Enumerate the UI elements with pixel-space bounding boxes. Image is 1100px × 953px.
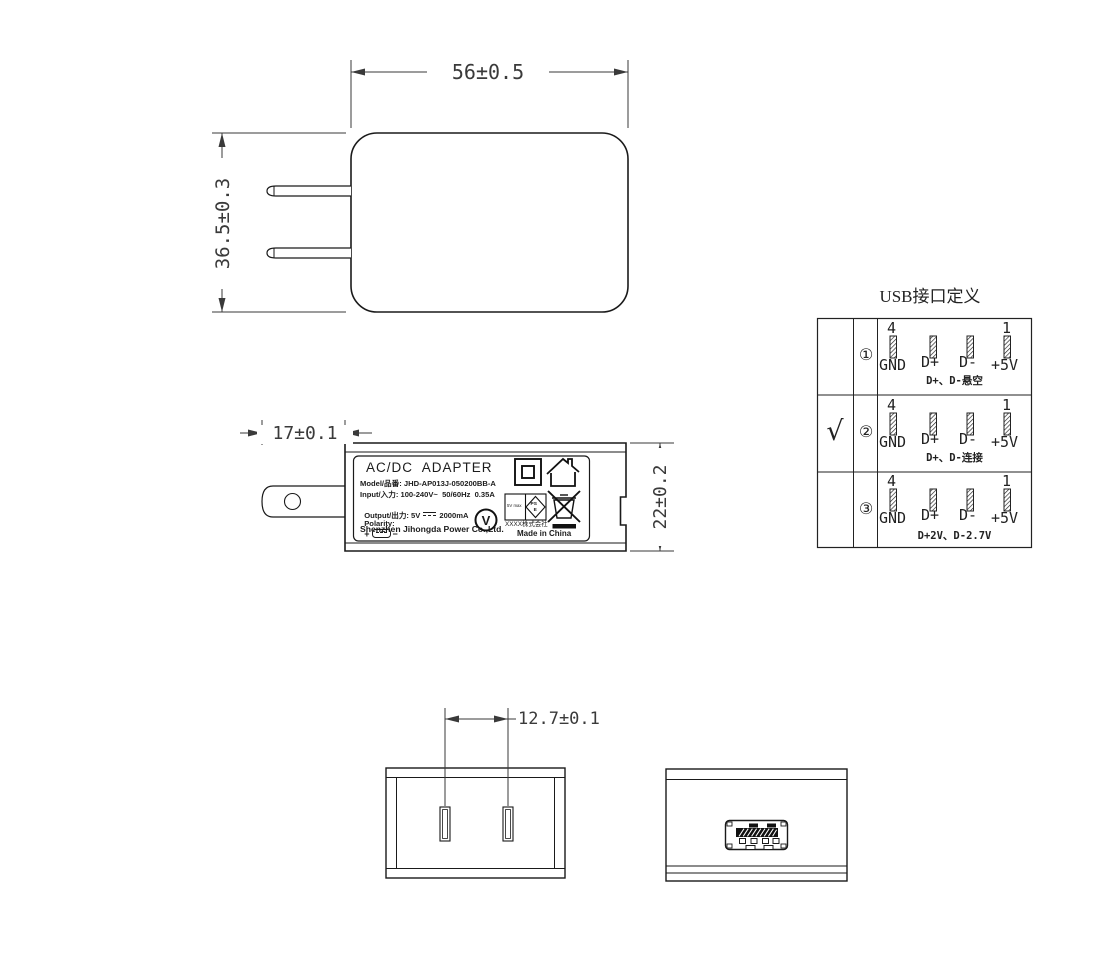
pse-letters-top: PS [531, 502, 537, 507]
label-made-in-china: Made in China [517, 530, 571, 538]
linework [0, 0, 1100, 953]
drawing-canvas: 56±0.5 36.5±0.3 17±0.1 22±0.2 12.7±0.1 A… [0, 0, 1100, 953]
row3-label-5v: +5V [991, 511, 1018, 527]
row3-label-dminus: D- [959, 508, 977, 524]
row3-label-dplus: D+ [921, 508, 939, 524]
dim-front-width-text: 56±0.5 [427, 62, 549, 83]
prong-slot-right [503, 807, 513, 841]
side-plug-prong [262, 486, 345, 517]
row2-selected-check: √ [820, 418, 850, 446]
dc-symbol-icon [423, 510, 436, 518]
row1-caption: D+、D-悬空 [877, 376, 1032, 387]
front-view [267, 133, 628, 312]
row2-pin4-number: 4 [887, 398, 896, 414]
label-company-cjk: XXXX株式会社 [505, 522, 548, 529]
row3-caption: D+2V、D-2.7V [877, 531, 1032, 542]
pin-symbols-row1 [890, 336, 1011, 358]
label-model-line: Model/品番: JHD-AP013J-050200BB-A [360, 480, 496, 488]
pin-symbols-row3 [890, 489, 1011, 511]
row3-pin1-number: 1 [1002, 474, 1011, 490]
plug-prong-bottom [267, 248, 351, 258]
dim-prong-length-text: 17±0.1 [257, 425, 353, 444]
weee-bar [553, 524, 577, 529]
row3-label-gnd: GND [879, 511, 906, 527]
row1-pin4-number: 4 [887, 321, 896, 337]
label-input-line: Input/入力: 100-240V~ 50/60Hz 0.35A [360, 491, 495, 499]
dim-prong-spacing-text: 12.7±0.1 [518, 711, 600, 729]
row3-pin4-number: 4 [887, 474, 896, 490]
row1-label-5v: +5V [991, 358, 1018, 374]
row2-circled-number: ② [855, 424, 877, 441]
usb-table-title: USB接口定义 [845, 288, 1015, 306]
dim-side-height-text: 22±0.2 [652, 448, 671, 546]
label-output-suffix: 2000mA [439, 511, 468, 520]
row1-label-dminus: D- [959, 355, 977, 371]
row2-label-5v: +5V [991, 435, 1018, 451]
row2-label-gnd: GND [879, 435, 906, 451]
efficiency-v-letter: V [480, 514, 492, 528]
plug-prong-top [267, 186, 351, 196]
usb-tongue [736, 828, 778, 837]
usb-face-view [666, 769, 847, 881]
bottom-view [386, 768, 565, 878]
dim-front-height-text: 36.5±0.3 [214, 158, 234, 289]
row1-label-gnd: GND [879, 358, 906, 374]
row2-caption: D+、D-连接 [877, 453, 1032, 464]
prong-slot-left [440, 807, 450, 841]
adapter-label-title: AC/DC ADAPTER [366, 461, 493, 475]
usb-port-icon [726, 821, 788, 850]
pse-letters-bottom: E [534, 508, 537, 513]
row1-pin1-number: 1 [1002, 321, 1011, 337]
row3-circled-number: ③ [855, 501, 877, 518]
rating-box-text: 5V max [507, 504, 522, 509]
pin-symbols-row2 [890, 413, 1011, 435]
row2-label-dminus: D- [959, 432, 977, 448]
row1-circled-number: ① [855, 347, 877, 364]
row2-pin1-number: 1 [1002, 398, 1011, 414]
row2-label-dplus: D+ [921, 432, 939, 448]
row1-label-dplus: D+ [921, 355, 939, 371]
